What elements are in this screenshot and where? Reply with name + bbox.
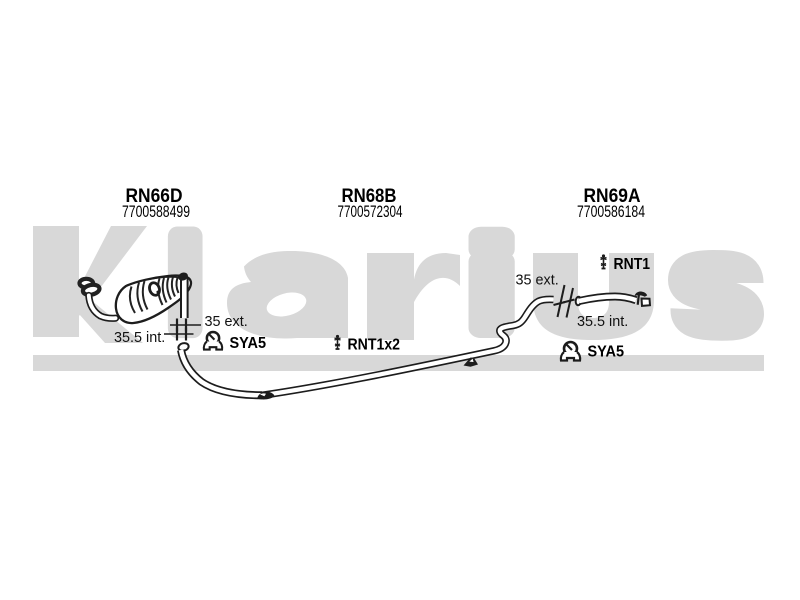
svg-text:35 ext.: 35 ext. [205,314,248,330]
svg-text:35.5 int.: 35.5 int. [577,314,628,330]
svg-text:7700588499: 7700588499 [122,202,190,221]
svg-text:SYA5: SYA5 [588,344,625,361]
svg-text:RNT1: RNT1 [614,256,651,273]
svg-text:35.5 int.: 35.5 int. [114,330,165,346]
svg-text:7700572304: 7700572304 [338,202,403,221]
svg-text:7700586184: 7700586184 [577,202,645,221]
svg-text:RNT1x2: RNT1x2 [348,337,401,354]
svg-text:35 ext.: 35 ext. [516,273,559,289]
svg-text:SYA5: SYA5 [230,335,267,352]
